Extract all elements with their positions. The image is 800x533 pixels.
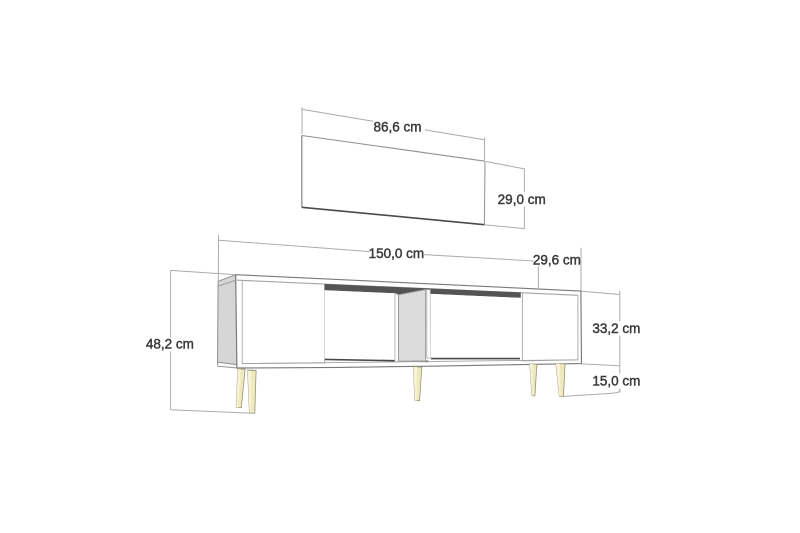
svg-text:15,0 cm: 15,0 cm: [592, 373, 640, 388]
svg-text:150,0 cm: 150,0 cm: [369, 246, 425, 261]
svg-text:86,6 cm: 86,6 cm: [373, 119, 421, 134]
svg-text:33,2 cm: 33,2 cm: [592, 321, 640, 336]
svg-text:29,6 cm: 29,6 cm: [533, 253, 581, 268]
svg-text:48,2 cm: 48,2 cm: [146, 337, 194, 352]
svg-text:29,0 cm: 29,0 cm: [498, 192, 546, 207]
